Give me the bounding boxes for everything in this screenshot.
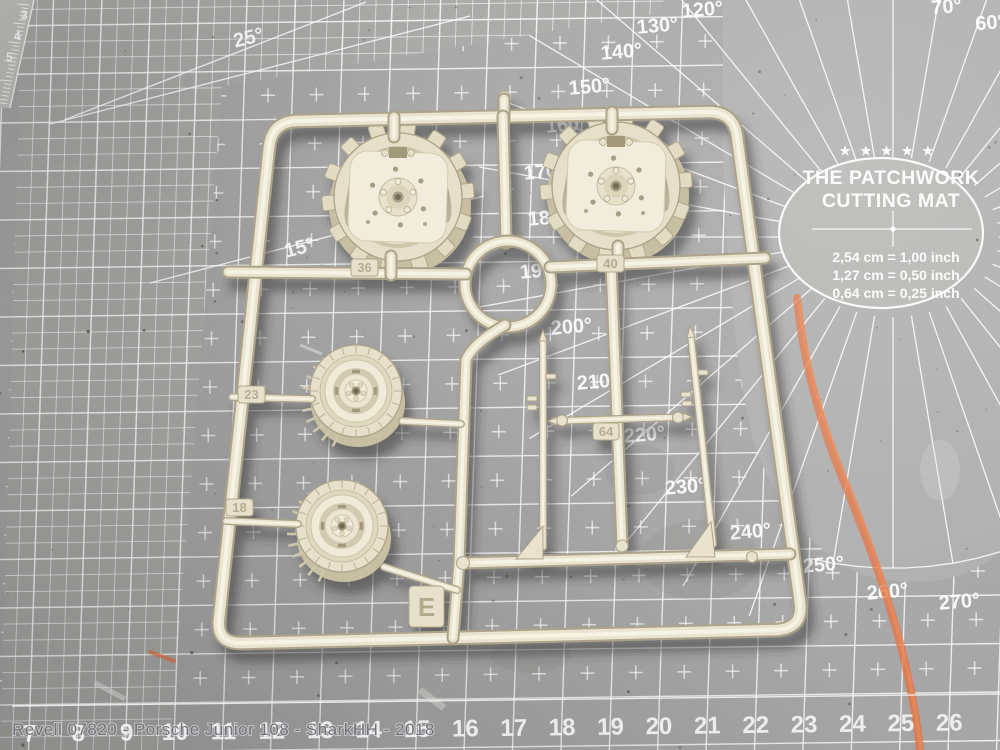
runner-end-cap-bottom [616, 540, 628, 552]
ruler-number: 19 [597, 713, 624, 740]
ruler-number: 16 [452, 715, 479, 742]
ruler-number: 24 [839, 711, 867, 738]
runner-bulge [747, 552, 758, 563]
photo-stage: 345 ★ ★ ★ ★ ★ THE PATCHWORK CUTTING MAT … [0, 0, 1000, 750]
part-number-tab-18: 18 [226, 499, 253, 516]
svg-text:40: 40 [603, 256, 617, 271]
main-runner-left [228, 272, 466, 274]
runner-end-cap-left [457, 557, 470, 570]
ruler-number: 25 [887, 710, 914, 737]
cutting-mat-photo: 345 ★ ★ ★ ★ ★ THE PATCHWORK CUTTING MAT … [0, 0, 1000, 750]
ruler-number: 18 [549, 714, 576, 741]
sprue-letter-tab-E: E [409, 586, 444, 627]
photo-caption: Revell 07820 - Porsche Junior 108 - Shar… [12, 720, 435, 739]
svg-text:18: 18 [232, 500, 246, 515]
svg-text:23: 23 [244, 387, 258, 402]
ruler-number: 17 [500, 715, 527, 742]
ruler-number: 23 [791, 711, 818, 738]
ruler-number: 26 [936, 709, 963, 736]
ruler-number: 20 [645, 713, 672, 740]
part-number-tab-36: 36 [351, 259, 378, 276]
part-number-tab-40: 40 [597, 255, 624, 272]
svg-text:E: E [418, 592, 435, 622]
svg-text:36: 36 [357, 260, 371, 275]
ruler-number: 21 [694, 712, 721, 739]
svg-text:64: 64 [599, 424, 614, 439]
part-number-tab-23: 23 [238, 386, 265, 403]
part-number-tab-64: 64 [593, 423, 619, 440]
ruler-number: 22 [742, 712, 769, 739]
